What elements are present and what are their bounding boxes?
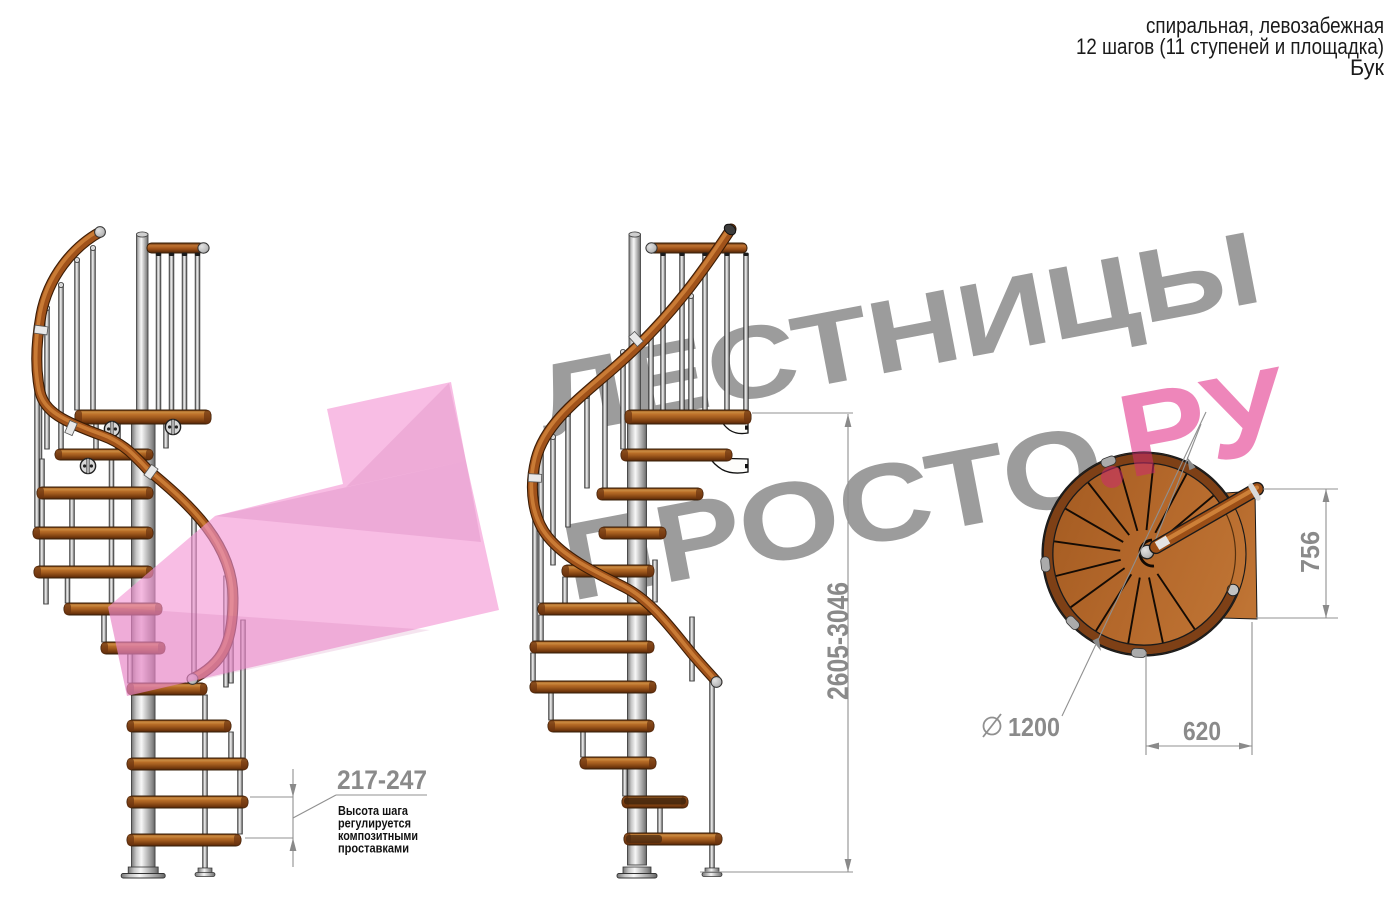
svg-text:2605-3046: 2605-3046	[822, 582, 855, 700]
svg-text:620: 620	[1183, 716, 1221, 746]
svg-text:217-247: 217-247	[337, 765, 427, 795]
svg-text:Бук: Бук	[1350, 55, 1384, 80]
svg-text:1200: 1200	[1008, 712, 1060, 742]
svg-text:756: 756	[1295, 531, 1325, 573]
svg-text:12 шагов (11 ступеней и площад: 12 шагов (11 ступеней и площадка)	[1076, 34, 1384, 59]
svg-text:проставками: проставками	[338, 841, 409, 856]
